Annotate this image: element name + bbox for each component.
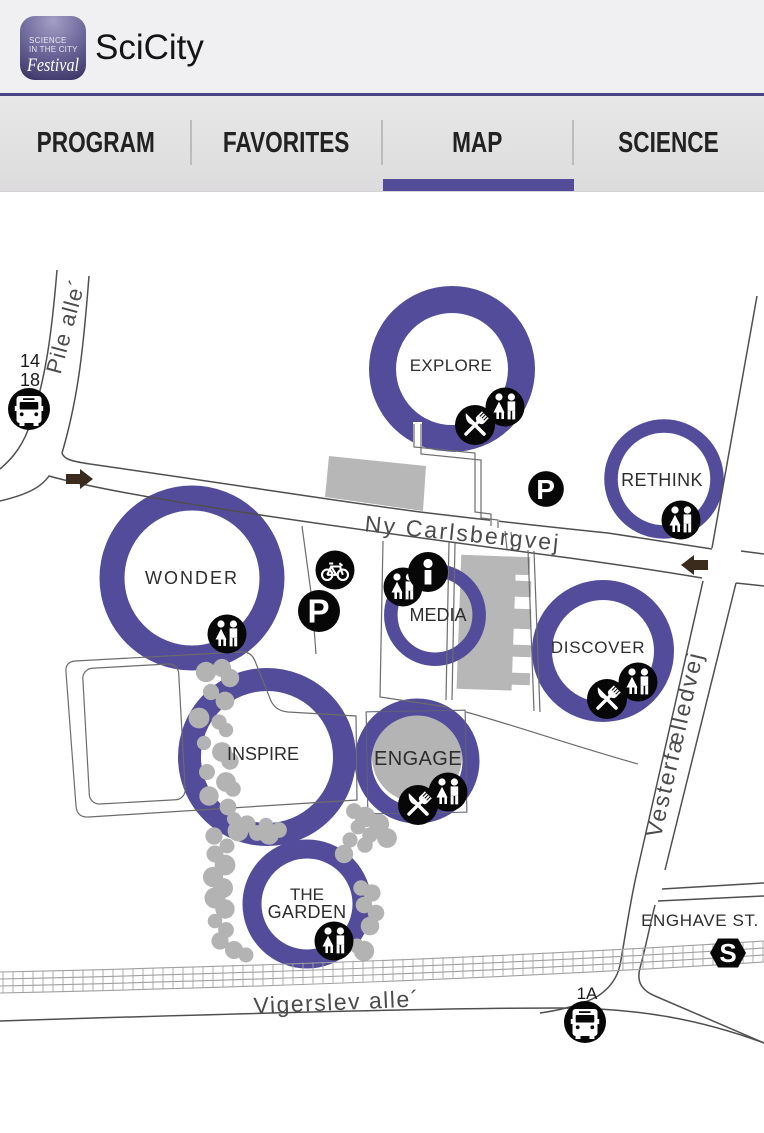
svg-text:GARDEN: GARDEN — [268, 902, 347, 922]
svg-text:ENGHAVE ST.: ENGHAVE ST. — [641, 911, 759, 930]
svg-text:Vigerslev alle´: Vigerslev alle´ — [253, 985, 421, 1018]
svg-text:1A: 1A — [577, 984, 598, 1003]
svg-text:MEDIA: MEDIA — [409, 605, 466, 625]
svg-text:18: 18 — [20, 370, 40, 390]
svg-text:INSPIRE: INSPIRE — [227, 744, 299, 764]
svg-text:WONDER: WONDER — [145, 568, 239, 588]
svg-text:IN THE CITY: IN THE CITY — [29, 45, 78, 54]
svg-text:SCIENCE: SCIENCE — [29, 36, 67, 45]
svg-text:ENGAGE: ENGAGE — [374, 748, 462, 770]
svg-text:RETHINK: RETHINK — [621, 470, 703, 490]
svg-text:14: 14 — [20, 351, 40, 371]
svg-text:EXPLORE: EXPLORE — [410, 356, 492, 375]
svg-text:Pile alle´: Pile alle´ — [41, 276, 90, 377]
svg-text:DISCOVER: DISCOVER — [551, 638, 645, 657]
svg-text:Festival: Festival — [26, 55, 79, 76]
